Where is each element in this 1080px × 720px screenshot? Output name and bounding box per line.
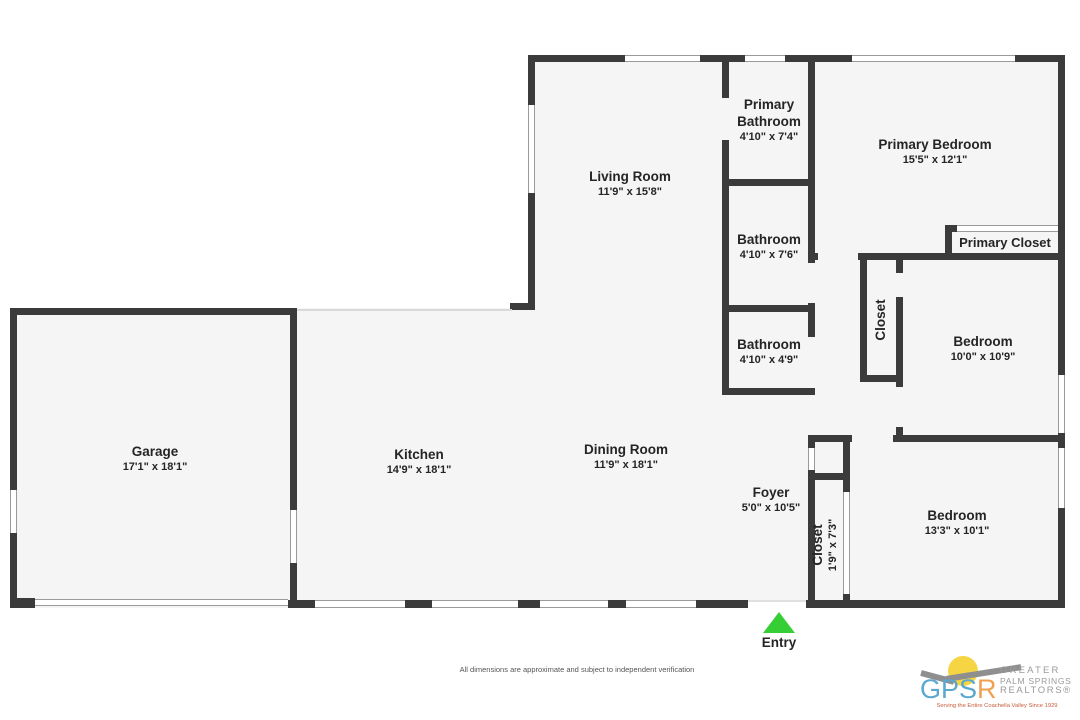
wall-segment [722, 305, 815, 312]
window [745, 55, 785, 62]
logo-association-name: GREATER PALM SPRINGS REALTORS® [1000, 666, 1072, 696]
wall-segment [1058, 55, 1065, 608]
wall-segment [10, 598, 35, 608]
room-name: Primary Bedroom [835, 136, 1035, 153]
wall-segment [722, 388, 815, 395]
logo-acronym-blue: GPS [920, 674, 977, 704]
floor-plan: Living Room 11'9" x 15'8" Primary Bathro… [0, 0, 1080, 720]
room-label-living-room: Living Room 11'9" x 15'8" [530, 168, 730, 199]
entry-arrow-icon [763, 612, 795, 633]
window [808, 448, 815, 470]
window [1058, 448, 1065, 508]
wall-segment [860, 375, 903, 382]
room-dimensions: 17'1" x 18'1" [55, 460, 255, 474]
window [852, 55, 1015, 62]
room-label-bedroom-lower: Bedroom 13'3" x 10'1" [874, 507, 1040, 538]
room-dimensions: 4'10" x 7'4" [722, 130, 816, 144]
wall-segment [290, 308, 297, 608]
room-name: Primary Bathroom [722, 96, 816, 130]
room-dimensions: 15'5" x 12'1" [835, 153, 1035, 167]
disclaimer-text: All dimensions are approximate and subje… [377, 665, 777, 674]
door-opening [852, 435, 893, 442]
room-label-bathroom-upper: Bathroom 4'10" x 7'6" [722, 231, 816, 262]
wall-segment [10, 308, 297, 315]
logo-line1: GREATER [1000, 666, 1072, 676]
entry-label-text: Entry [744, 634, 814, 651]
window [1058, 375, 1065, 433]
room-name: Bedroom [900, 333, 1066, 350]
wall-segment [510, 303, 535, 310]
garage-door-opening [35, 599, 288, 606]
room-label-bedroom-mid: Bedroom 10'0" x 10'9" [900, 333, 1066, 364]
window [10, 490, 17, 533]
entry-label: Entry [744, 634, 814, 651]
room-name: Dining Room [526, 441, 726, 458]
room-dimensions: 14'9" x 18'1" [319, 463, 519, 477]
room-name: Bedroom [874, 507, 1040, 524]
window [626, 600, 696, 608]
room-label-dining-room: Dining Room 11'9" x 18'1" [526, 441, 726, 472]
room-dimensions: 1'9" x 7'3" [826, 490, 840, 600]
room-label-kitchen: Kitchen 14'9" x 18'1" [319, 446, 519, 477]
room-label-primary-bedroom: Primary Bedroom 15'5" x 12'1" [835, 136, 1035, 167]
logo-line3: REALTORS® [1000, 686, 1072, 696]
door-opening [290, 510, 297, 563]
room-dimensions: 4'10" x 7'6" [722, 248, 816, 262]
room-label-primary-closet: Primary Closet [950, 235, 1060, 251]
gpsr-logo: GPSR GREATER PALM SPRINGS REALTORS® Serv… [918, 650, 1078, 716]
door-opening [808, 263, 815, 303]
room-name: Kitchen [319, 446, 519, 463]
room-label-garage: Garage 17'1" x 18'1" [55, 443, 255, 474]
room-label-bathroom-lower: Bathroom 4'10" x 4'9" [722, 336, 816, 367]
closet-opening [957, 225, 1058, 232]
wall-segment [843, 480, 850, 492]
logo-tagline: Serving the Entire Coachella Valley Sinc… [918, 703, 1076, 709]
opening-line [297, 309, 512, 311]
room-dimensions: 10'0" x 10'9" [900, 350, 1066, 364]
door-opening [818, 253, 858, 260]
room-label-foyer: Foyer 5'0" x 10'5" [721, 484, 821, 515]
room-name: Closet [872, 285, 889, 355]
window [432, 600, 518, 608]
room-name: Closet [809, 490, 826, 600]
room-label-primary-bathroom: Primary Bathroom 4'10" x 7'4" [722, 96, 816, 144]
room-label-closet-foyer: Closet 1'9" x 7'3" [809, 490, 843, 600]
entry-door-opening [748, 600, 806, 608]
room-dimensions: 13'3" x 10'1" [874, 524, 1040, 538]
room-dimensions: 11'9" x 15'8" [530, 185, 730, 199]
room-name: Bathroom [722, 336, 816, 353]
closet-door [843, 492, 850, 594]
room-name: Garage [55, 443, 255, 460]
room-dimensions: 5'0" x 10'5" [721, 501, 821, 515]
room-dimensions: 11'9" x 18'1" [526, 458, 726, 472]
wall-segment [860, 258, 867, 382]
door-opening [896, 273, 903, 297]
wall-segment [10, 308, 17, 608]
window [540, 600, 608, 608]
room-dimensions: 4'10" x 4'9" [722, 353, 816, 367]
logo-acronym: GPSR [920, 674, 997, 704]
window [315, 600, 405, 608]
window [625, 55, 700, 62]
room-name: Living Room [530, 168, 730, 185]
room-name: Primary Closet [950, 235, 1060, 251]
room-name: Foyer [721, 484, 821, 501]
room-name: Bathroom [722, 231, 816, 248]
room-label-closet-mid: Closet [872, 285, 892, 355]
logo-acronym-orange: R [977, 674, 997, 704]
wall-segment [722, 179, 815, 186]
